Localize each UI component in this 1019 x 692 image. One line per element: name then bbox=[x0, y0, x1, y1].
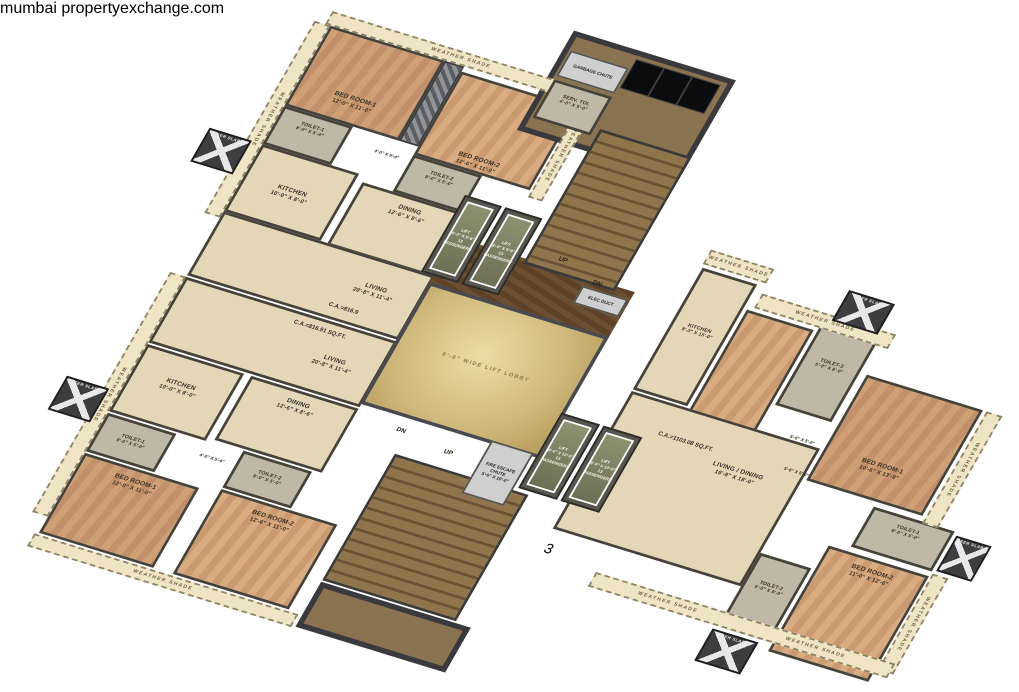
ser-slab-label: SER SLAB bbox=[216, 132, 242, 143]
brand-name: propertyexchange bbox=[61, 0, 189, 17]
elec-duct-label: ELEC DUCT bbox=[586, 295, 614, 308]
bed bbox=[194, 492, 312, 569]
carpet-area: C.A.=1103.08 SQ.FT. bbox=[657, 431, 715, 453]
room-dims: 5'-0" X 8'-0" bbox=[813, 363, 843, 376]
room-dims: 10'-6" X 13'-9" bbox=[857, 465, 899, 482]
room-name: TOILET-2 bbox=[257, 470, 283, 482]
passage-dim: 4'-0" X 5'-4" bbox=[373, 149, 400, 161]
room-dims: 8'-0" X 5'-0" bbox=[251, 475, 281, 488]
room-dims: 20'-8" X 11'-4" bbox=[351, 287, 393, 304]
carpet-area: C.A.=816.9 bbox=[327, 301, 359, 316]
garbage-chute-label: GARBAGE CHUTE bbox=[572, 64, 614, 81]
room-name: LIVING bbox=[322, 354, 347, 367]
floor-plan-canvas: WEATHER SHADE WEATHER SHADE BED ROOM-1 1… bbox=[0, 0, 1019, 692]
room-name: TOILET-1 bbox=[120, 433, 146, 445]
room-dims: 8'-0" X 5'-0" bbox=[115, 438, 145, 451]
stair-dn-label: DN bbox=[395, 427, 407, 435]
bed bbox=[839, 378, 948, 454]
room-name: KITCHEN bbox=[276, 184, 308, 199]
room-name: SERV. TOI. bbox=[561, 94, 591, 107]
room-dims: 8'-0" X 5'-0" bbox=[294, 126, 324, 139]
room-name: TOILET-3 bbox=[819, 358, 845, 370]
room-name: LIVING bbox=[363, 282, 388, 295]
room-name: LIVING / DINING bbox=[711, 461, 764, 482]
ser-slab-label: SER SLAB bbox=[857, 295, 883, 306]
room-name: TOILET-2 bbox=[429, 170, 455, 182]
room-name: TOILET-1 bbox=[299, 121, 325, 133]
room-name: BED ROOM-1 bbox=[860, 457, 905, 476]
room-dims: 20'-8" X 11'-4" bbox=[310, 359, 352, 376]
room-dims: 10'-0" X 8'-0" bbox=[157, 384, 196, 400]
brand-city: mumbai bbox=[0, 0, 57, 17]
passage-dim: 4'-0" X 5'-4" bbox=[198, 453, 225, 465]
lift-lobby-label: 6'-0" WIDE LIFT LOBBY bbox=[441, 352, 531, 384]
room-name: BED ROOM-2 bbox=[456, 151, 501, 170]
room-dims: 12'-0" X 11'-0" bbox=[330, 98, 372, 115]
watermark: mumbai propertyexchange.com bbox=[0, 0, 1019, 18]
room-name: KITCHEN bbox=[687, 323, 713, 335]
ser-slab-label: SER SLAB bbox=[721, 633, 747, 644]
room-dims: 10'-0" X 8'-0" bbox=[269, 190, 308, 206]
brand-tld: .com bbox=[189, 0, 224, 17]
ser-slab-label: SER SLAB bbox=[959, 539, 985, 550]
room-name: TOILET-2 bbox=[758, 580, 784, 592]
room-name: TOILET-1 bbox=[895, 524, 921, 536]
room-dims: 8'-0" X 5'-0" bbox=[890, 529, 920, 542]
room-dims: 4'-0" X 5'-0" bbox=[558, 100, 588, 113]
room-dims: 18'-8" X 18'-0" bbox=[713, 469, 755, 486]
sofa bbox=[188, 237, 224, 282]
room-dims: 8'-3" X 15'-0" bbox=[680, 328, 713, 342]
room-dims: 8'-0" X 5'-0" bbox=[423, 175, 453, 188]
room-name: KITCHEN bbox=[165, 378, 197, 393]
ser-slab-label: SER SLAB bbox=[73, 380, 99, 391]
stair-up-label: UP bbox=[442, 449, 454, 457]
room-dims: 5'-0" X 8'-0" bbox=[753, 585, 783, 598]
